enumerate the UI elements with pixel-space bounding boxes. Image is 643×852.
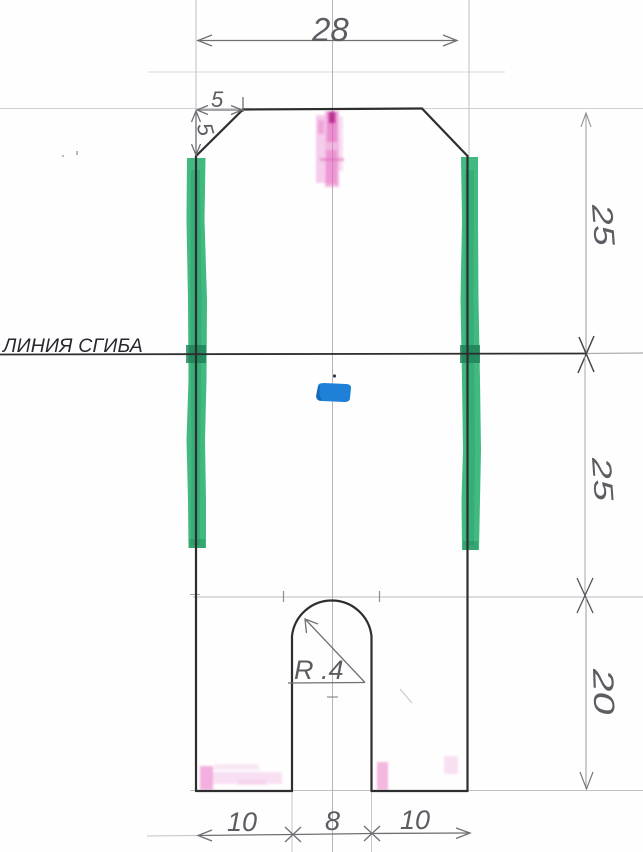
svg-text:10: 10: [400, 805, 430, 835]
svg-text:8: 8: [325, 806, 340, 836]
svg-text:R .4: R .4: [294, 655, 344, 685]
svg-text:5: 5: [211, 87, 224, 112]
svg-text:20: 20: [586, 667, 620, 715]
svg-text:25: 25: [585, 202, 620, 247]
svg-text:10: 10: [227, 807, 257, 837]
svg-text:25: 25: [586, 455, 619, 502]
svg-text:28: 28: [311, 11, 349, 48]
svg-text:ЛИНИЯ СГИБА: ЛИНИЯ СГИБА: [1, 335, 143, 357]
